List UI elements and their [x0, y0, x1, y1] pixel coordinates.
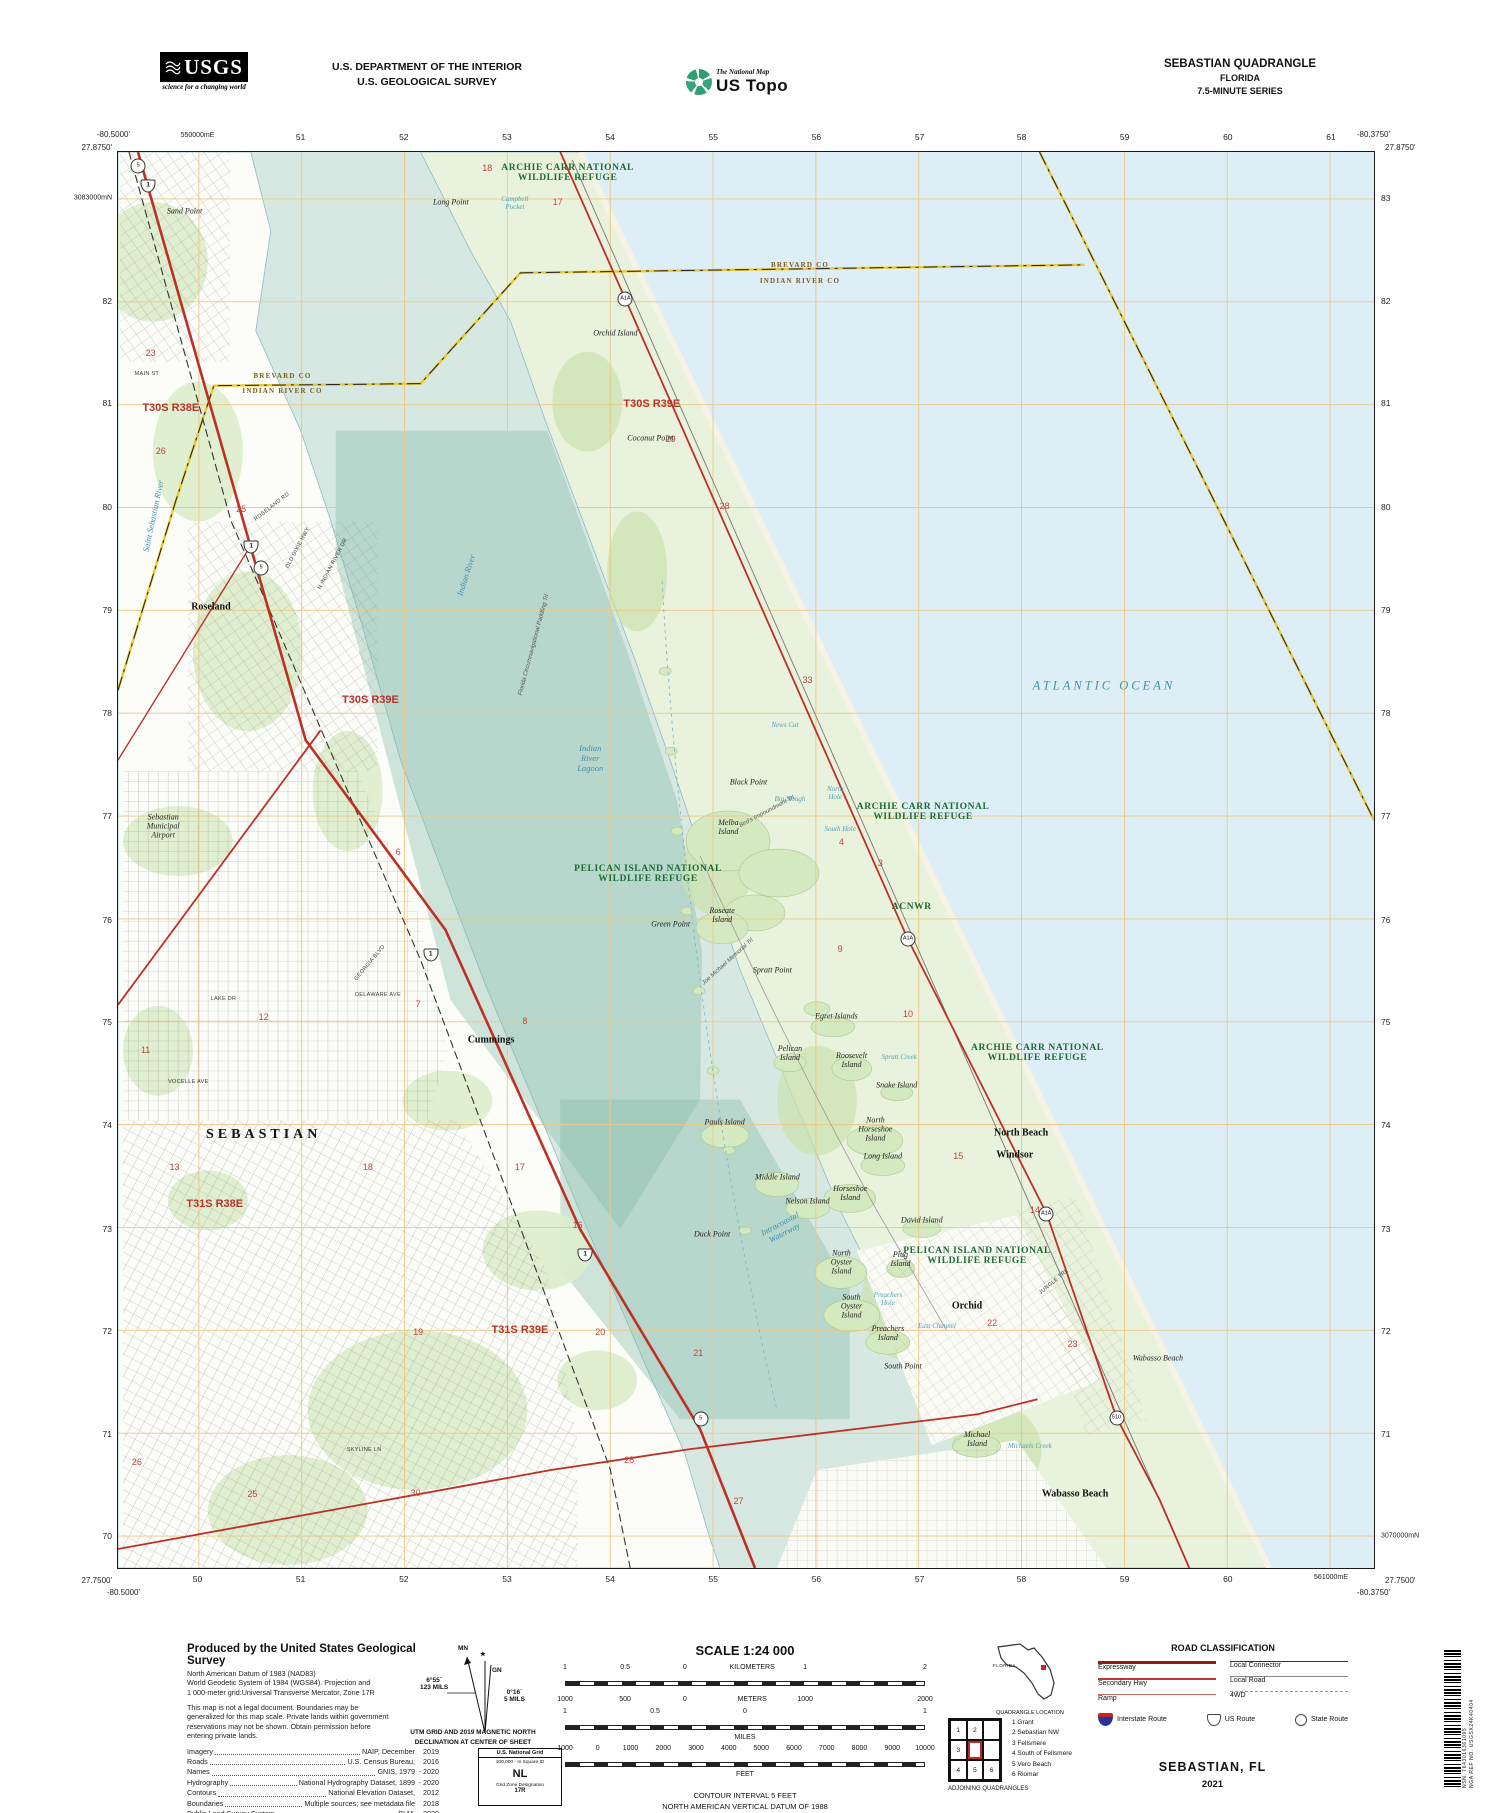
credit-leader	[230, 1785, 297, 1786]
map-label: 23	[1068, 1339, 1078, 1349]
map-label: Wabasso Beach	[1042, 1489, 1108, 1500]
barcode-nga-ref: NGA REF NO. USGSX24K40404	[1469, 1650, 1475, 1788]
scale-mark: 0.5	[650, 1708, 660, 1715]
scale-bar-miles	[565, 1725, 925, 1730]
map-label: Orchid Island	[593, 329, 637, 338]
grid-number: 76	[1381, 915, 1390, 925]
grid-number: 77	[1381, 811, 1390, 821]
grid-number: 72	[103, 1326, 112, 1336]
map-label: SKYLINE LN	[347, 1447, 382, 1453]
map-label: OLD DIXIE HWY	[284, 527, 311, 570]
dept-line2: U.S. GEOLOGICAL SURVEY	[262, 75, 592, 90]
map-label: Bird's Impoundment Trl	[739, 795, 796, 829]
map-label: JUNGLE TRL	[1038, 1268, 1070, 1296]
grid-number: 52	[399, 132, 408, 142]
scale-mi-marks: 10.501	[565, 1708, 925, 1716]
map-label: Campbell Pocket	[501, 195, 528, 211]
map-label: DELAWARE AVE	[355, 992, 401, 998]
map-label: Joe Michael Memorial Trl	[702, 937, 755, 986]
national-map-logo: The National Map US Topo	[686, 68, 788, 96]
adjoining-cell: 6	[983, 1760, 1000, 1780]
credit-year: 2020	[415, 1809, 439, 1813]
map-label: T30S R39E	[342, 694, 399, 706]
interstate-route-label: Interstate Route	[1117, 1716, 1167, 1723]
map-label: Roseate Island	[709, 906, 734, 924]
adjoining-cell: 4	[950, 1760, 967, 1780]
credit-label: Imagery	[187, 1747, 213, 1757]
scale-mark: 8000	[852, 1745, 868, 1752]
grid-number: 81	[103, 398, 112, 408]
coord-bottom-left-lon: -80.5000'	[80, 1588, 140, 1597]
map-label: PELICAN ISLAND NATIONAL WILDLIFE REFUGE	[574, 864, 722, 884]
grid-number: 56	[812, 1574, 821, 1584]
credit-row: Boundaries Multiple sources; see metadat…	[187, 1799, 439, 1809]
map-label: 20	[595, 1327, 605, 1337]
map-label: Long Point	[433, 197, 469, 206]
map-label: ARCHIE CARR NATIONAL WILDLIFE REFUGE	[857, 802, 990, 822]
map-label: 1	[423, 948, 438, 961]
grid-number: 61	[1326, 132, 1335, 142]
grid-number: 71	[103, 1429, 112, 1439]
usgs-topo-sheet: USGS science for a changing world U.S. D…	[0, 0, 1500, 1813]
quadrangle-title-block: SEBASTIAN QUADRANGLE FLORIDA 7.5-MINUTE …	[1115, 58, 1365, 96]
map-label: 23	[146, 348, 156, 358]
map-label: South Point	[884, 1361, 922, 1370]
credit-year: - 2020	[415, 1767, 439, 1777]
scale-feet-unit: FEET	[555, 1771, 935, 1778]
grid-number: 58	[1017, 132, 1026, 142]
credit-source: NAIP, December	[362, 1747, 415, 1757]
sheet-year: 2021	[1120, 1779, 1305, 1790]
adjoining-quadrangles: 123456 1 Grant2 Sebastian NW3 Fellsmere4…	[948, 1718, 1118, 1792]
sheet-name: SEBASTIAN, FL	[1120, 1760, 1305, 1774]
tnm-small-text: The National Map	[716, 68, 788, 76]
scale-mark: 1	[563, 1708, 567, 1715]
adjoining-cell	[967, 1740, 984, 1760]
adjoining-quad-name: 2 Sebastian NW	[1012, 1728, 1072, 1738]
scale-mark: 1	[563, 1664, 567, 1671]
grid-number: 58	[1017, 1574, 1026, 1584]
scale-mark: 0.5	[620, 1664, 630, 1671]
map-label: 19	[413, 1327, 423, 1337]
map-label: 13	[170, 1162, 180, 1172]
credit-label: Boundaries	[187, 1799, 223, 1809]
credit-leader	[215, 1754, 360, 1755]
map-label: ACNWR	[892, 902, 932, 912]
adjoining-cell	[983, 1740, 1000, 1760]
map-label: 28	[720, 501, 730, 511]
coord-bottom-left-lat: 27.7500'	[58, 1576, 112, 1585]
scale-mark: 500	[619, 1696, 631, 1703]
map-label: T30S R39E	[623, 398, 680, 410]
credit-row: Contours National Elevation Dataset, 201…	[187, 1788, 439, 1798]
grid-number: 77	[103, 811, 112, 821]
map-label: N INDIAN RIVER DR	[317, 537, 349, 590]
map-label: Snake Island	[876, 1081, 917, 1090]
road-class-label: Local Connector	[1230, 1662, 1281, 1669]
scale-m-marks: 10005000METERS10002000	[565, 1696, 925, 1704]
grid-number: 79	[103, 605, 112, 615]
credit-source: National Elevation Dataset,	[328, 1788, 415, 1798]
map-label: 25	[247, 1489, 257, 1499]
credit-label: Names	[187, 1767, 210, 1777]
grid-number: 55	[709, 1574, 718, 1584]
map-label: ARCHIE CARR NATIONAL WILDLIFE REFUGE	[501, 163, 634, 183]
map-label: Middle Island	[755, 1173, 800, 1182]
scale-mark: 0	[683, 1696, 687, 1703]
map-label: Nelson Island	[785, 1197, 829, 1206]
scale-mark: 0	[683, 1664, 687, 1671]
quad-name: SEBASTIAN QUADRANGLE	[1115, 58, 1365, 70]
grid-number: 53	[502, 132, 511, 142]
map-label: 25	[236, 504, 246, 514]
grid-number: 550000mE	[181, 132, 215, 139]
usng-subtitle: 100,000 - m Square ID	[479, 1760, 561, 1765]
scale-mark: 2000	[917, 1696, 933, 1703]
contour-interval-text: CONTOUR INTERVAL 5 FEET NORTH AMERICAN V…	[555, 1790, 935, 1813]
map-label: A1A	[618, 292, 633, 307]
produced-by-title: Produced by the United States Geological…	[187, 1643, 439, 1667]
grid-number: 3083000mN	[74, 194, 112, 201]
map-label: North Hole	[827, 785, 843, 801]
usgs-logo-text: USGS	[184, 55, 243, 80]
map-label: 22	[987, 1318, 997, 1328]
adjoining-cell	[983, 1720, 1000, 1740]
map-area: ARCHIE CARR NATIONAL WILDLIFE REFUGELong…	[117, 151, 1375, 1569]
usng-title: U.S. National Grid	[479, 1749, 561, 1758]
grid-number: 53	[502, 1574, 511, 1584]
map-label: Cummings	[468, 1034, 515, 1045]
road-class-row: Local Connector	[1230, 1661, 1348, 1669]
map-label: Intracoastal Waterway	[759, 1210, 805, 1247]
map-label: 5	[693, 1412, 708, 1427]
map-label: 18	[363, 1162, 373, 1172]
map-label: T31S R39E	[491, 1324, 548, 1336]
national-map-icon	[686, 69, 712, 95]
map-label: 8	[522, 1016, 527, 1026]
map-label: ARCHIE CARR NATIONAL WILDLIFE REFUGE	[971, 1043, 1104, 1063]
credit-source: BLM,	[398, 1809, 415, 1813]
florida-label: FLORIDA	[993, 1663, 1016, 1668]
grid-number: 60	[1223, 132, 1232, 142]
map-label: Sebastian Municipal Airport	[147, 813, 180, 840]
map-label: 11	[141, 1045, 150, 1055]
map-label: News Cut	[771, 721, 798, 729]
map-label: North Beach	[994, 1128, 1048, 1139]
map-label: Horseshoe Island	[833, 1184, 867, 1202]
map-label: GEORGIA BLVD	[354, 944, 387, 982]
credit-leader	[210, 1764, 346, 1765]
grid-number: 51	[296, 132, 305, 142]
credit-source: National Hydrography Dataset, 1899	[299, 1778, 415, 1788]
scale-mark: 4000	[721, 1745, 737, 1752]
map-label: 6	[396, 847, 401, 857]
adjoining-quad-name: 5 Vero Beach	[1012, 1760, 1072, 1770]
map-label: North Oyster Island	[831, 1249, 852, 1276]
map-label: South Oyster Island	[841, 1293, 862, 1320]
map-label: LAKE DR	[211, 996, 237, 1002]
grid-number: 51	[296, 1574, 305, 1584]
map-label: David Island	[901, 1215, 943, 1224]
florida-outline	[994, 1641, 1066, 1703]
scale-mark: 1	[803, 1664, 807, 1671]
map-label: SEBASTIAN	[206, 1127, 321, 1143]
map-label: 510	[1109, 1410, 1124, 1425]
grid-numbers-right: 838281807978777675747372713070000mN	[1381, 151, 1421, 1569]
road-class-row: Expressway	[1098, 1661, 1216, 1671]
map-label: 1	[244, 541, 259, 554]
usgs-wave-icon	[165, 59, 181, 75]
grid-number: 56	[812, 132, 821, 142]
adjoining-grid: 123456	[948, 1718, 1002, 1782]
ustopo-text: US Topo	[716, 76, 788, 96]
declination-gn-label: GN	[492, 1667, 502, 1674]
department-header: U.S. DEPARTMENT OF THE INTERIOR U.S. GEO…	[262, 60, 592, 90]
data-credits-list: Imagery NAIP, December 2019 Roads U.S. C…	[187, 1747, 439, 1813]
road-class-left-column: ExpresswaySecondary HwyRamp	[1098, 1661, 1216, 1709]
credit-leader	[218, 1796, 326, 1797]
state-locator: FLORIDA QUADRANGLE LOCATION	[975, 1641, 1085, 1716]
scale-mark: 2	[923, 1664, 927, 1671]
quad-state: FLORIDA	[1115, 73, 1365, 83]
map-label: Egret Islands	[815, 1011, 858, 1020]
road-class-label: Local Road	[1230, 1677, 1265, 1684]
map-label: Black Point	[730, 778, 768, 787]
map-label: Roosevelt Island	[836, 1051, 867, 1069]
grid-number: 57	[915, 132, 924, 142]
grid-number: 72	[1381, 1326, 1390, 1336]
adjoining-list: 1 Grant2 Sebastian NW3 Fellsmere4 South …	[1012, 1718, 1072, 1782]
grid-number: 59	[1120, 1574, 1129, 1584]
scale-mark: 5000	[753, 1745, 769, 1752]
barcode-nsn: NSN. 7643016361095	[1462, 1650, 1468, 1788]
barcode-icon	[1444, 1650, 1461, 1788]
usng-square-id: NL	[479, 1768, 561, 1780]
map-label: 9	[838, 944, 843, 954]
quadrangle-location-caption: QUADRANGLE LOCATION	[975, 1710, 1085, 1716]
map-label: 17	[553, 197, 563, 207]
usng-gzd-value: 17R	[479, 1788, 561, 1794]
adjoining-caption: ADJOINING QUADRANGLES	[948, 1786, 1118, 1792]
scale-mark: 6000	[786, 1745, 802, 1752]
quad-series: 7.5-MINUTE SERIES	[1115, 86, 1365, 96]
grid-number: 80	[103, 502, 112, 512]
barcode-block: NSN. 7643016361095 NGA REF NO. USGSX24K4…	[1444, 1650, 1478, 1788]
declination-star: ★	[480, 1650, 486, 1658]
us-route-shield-icon	[1207, 1714, 1221, 1726]
credit-row: Roads U.S. Census Bureau, 2016	[187, 1757, 439, 1767]
map-label: 3	[878, 858, 883, 868]
map-label: Preachers Hole	[874, 1291, 903, 1307]
grid-number: 60	[1223, 1574, 1232, 1584]
grid-number: 82	[1381, 296, 1390, 306]
quad-location-marker	[1041, 1665, 1046, 1670]
sheet-title-block: SEBASTIAN, FL 2021	[1120, 1760, 1305, 1790]
usgs-logo: USGS science for a changing world	[160, 52, 270, 91]
grid-number: 73	[1381, 1224, 1390, 1234]
map-label: Sand Point	[167, 207, 202, 216]
credit-label: Roads	[187, 1757, 208, 1767]
map-label: Florida Circumnavigational Paddling Trl	[517, 594, 550, 696]
scale-mark: 3000	[688, 1745, 704, 1752]
credit-source: GNIS, 1979	[377, 1767, 415, 1777]
grid-number: 80	[1381, 502, 1390, 512]
grid-number: 561000mE	[1314, 1574, 1348, 1581]
map-labels: ARCHIE CARR NATIONAL WILDLIFE REFUGELong…	[118, 152, 1374, 1568]
road-classification-legend: ROAD CLASSIFICATION ExpresswaySecondary …	[1098, 1643, 1348, 1726]
grid-number: 75	[103, 1017, 112, 1027]
scale-mark: 0	[743, 1708, 747, 1715]
grid-number: 74	[1381, 1120, 1390, 1130]
map-label: 26	[156, 446, 166, 456]
map-label: Windsor	[996, 1149, 1033, 1160]
road-class-title: ROAD CLASSIFICATION	[1098, 1643, 1348, 1653]
credit-row: Public Land Survey System BLM, 2020	[187, 1809, 439, 1813]
adjoining-cell: 5	[967, 1760, 984, 1780]
grid-number: 71	[1381, 1429, 1390, 1439]
coord-bottom-right-lat: 27.7500'	[1385, 1576, 1415, 1585]
grid-number: 82	[103, 296, 112, 306]
adjoining-cell: 1	[950, 1720, 967, 1740]
road-class-row: Secondary Hwy	[1098, 1678, 1216, 1687]
map-label: Indian River Lagoon	[577, 743, 603, 773]
dept-line1: U.S. DEPARTMENT OF THE INTERIOR	[262, 60, 592, 75]
map-label: MAIN ST	[135, 371, 159, 377]
grid-numbers-bottom: 5051525354555657585960561000mE	[117, 1574, 1375, 1588]
credit-year: 2012	[415, 1788, 439, 1798]
scale-title: SCALE 1:24 000	[555, 1643, 935, 1658]
map-label: 21	[693, 1348, 703, 1358]
map-label: Duck Point	[694, 1229, 730, 1238]
scale-mark: METERS	[738, 1696, 767, 1703]
declination-right-value: 0°16´ 5 MILS	[504, 1689, 525, 1703]
usng-box: U.S. National Grid 100,000 - m Square ID…	[478, 1748, 562, 1806]
road-class-row: Local Road	[1230, 1676, 1348, 1684]
usgs-logo-box: USGS	[160, 52, 248, 82]
grid-number: 59	[1120, 132, 1129, 142]
coord-bottom-right-lon: -80.3750'	[1330, 1588, 1390, 1597]
map-label: 1	[578, 1249, 593, 1262]
map-label: Orchid	[952, 1301, 982, 1312]
credit-leader	[225, 1806, 302, 1807]
map-label: North Horseshoe Island	[858, 1116, 892, 1143]
credit-source: U.S. Census Bureau,	[347, 1757, 415, 1767]
grid-number: 76	[103, 915, 112, 925]
map-label: 30	[411, 1488, 421, 1498]
map-label: Green Point	[651, 919, 690, 928]
map-label: BREVARD CO	[771, 261, 829, 269]
map-label: 1	[141, 179, 156, 192]
map-label: 5	[254, 561, 269, 576]
map-label: 5	[131, 159, 146, 174]
credit-row: Hydrography National Hydrography Dataset…	[187, 1778, 439, 1788]
grid-number: 54	[605, 1574, 614, 1584]
map-label: Pelican Island	[778, 1044, 802, 1062]
scale-mark: 9000	[884, 1745, 900, 1752]
grid-numbers-left: 3083000mN82818079787776757473727170	[76, 151, 112, 1569]
map-label: 33	[803, 675, 813, 685]
declination-left-value: 6°55´ 123 MILS	[420, 1677, 448, 1691]
map-label: 17	[515, 1162, 525, 1172]
map-label: Melba Island	[718, 818, 738, 836]
scale-mark: 1000	[557, 1745, 573, 1752]
map-label: ROSELAND RD	[254, 492, 292, 523]
credit-label: Contours	[187, 1788, 216, 1798]
map-label: 28	[624, 1455, 634, 1465]
map-label: Spratt Creek	[882, 1053, 917, 1061]
map-label: South Hole	[825, 825, 856, 833]
grid-number: 54	[605, 132, 614, 142]
credit-leader	[212, 1775, 376, 1776]
map-label: Spratt Point	[753, 966, 792, 975]
grid-numbers-top: 550000mE5152535455565758596061	[117, 132, 1375, 146]
grid-number: 78	[103, 708, 112, 718]
map-label: Michael Island	[964, 1430, 990, 1448]
scale-mark: 1000	[797, 1696, 813, 1703]
grid-number: 79	[1381, 605, 1390, 615]
map-label: 26	[132, 1457, 142, 1467]
credit-source: Multiple sources; see metadata file	[304, 1799, 415, 1809]
us-route-label: US Route	[1225, 1716, 1255, 1723]
map-label: 4	[839, 837, 844, 847]
credit-year: - 2020	[415, 1778, 439, 1788]
map-label: Wabasso Beach	[1133, 1354, 1183, 1363]
scale-ft-marks: 1000010002000300040005000600070008000900…	[565, 1745, 925, 1753]
grid-number: 78	[1381, 708, 1390, 718]
grid-number: 52	[399, 1574, 408, 1584]
grid-number: 70	[103, 1531, 112, 1541]
road-class-right-column: Local ConnectorLocal Road4WD	[1230, 1661, 1348, 1709]
scale-mark: 1000	[557, 1696, 573, 1703]
usgs-tagline: science for a changing world	[160, 83, 248, 91]
road-class-row: 4WD	[1230, 1691, 1348, 1699]
map-label: INDIAN RIVER CO	[760, 277, 840, 285]
declination-caption: UTM GRID AND 2019 MAGNETIC NORTH DECLINA…	[383, 1728, 563, 1748]
map-label: Michaels Creek	[1008, 1442, 1052, 1450]
scale-block: SCALE 1:24 000 10.50KILOMETERS12 1000500…	[555, 1643, 935, 1813]
credit-label: Hydrography	[187, 1778, 228, 1788]
credit-row: Names GNIS, 1979 - 2020	[187, 1767, 439, 1777]
credit-year: 2018	[415, 1799, 439, 1809]
grid-number: 81	[1381, 398, 1390, 408]
road-class-label: Expressway	[1098, 1664, 1136, 1671]
scale-mark: 1000	[623, 1745, 639, 1752]
map-label: ATLANTIC OCEAN	[1033, 678, 1176, 693]
map-label: 7	[416, 999, 421, 1009]
map-label: 12	[259, 1012, 269, 1022]
map-label: INDIAN RIVER CO	[242, 387, 322, 395]
grid-number: 73	[103, 1224, 112, 1234]
scale-mark: KILOMETERS	[730, 1664, 775, 1671]
map-label: T30S R38E	[142, 402, 199, 414]
map-label: East Channel	[918, 1322, 956, 1330]
declination-mn-label: MN	[458, 1645, 468, 1652]
scale-mark: 7000	[819, 1745, 835, 1752]
map-label: Saint Sebastian River	[141, 479, 166, 553]
grid-number: 75	[1381, 1017, 1390, 1027]
map-label: A1A	[901, 932, 916, 947]
map-label: 16	[573, 1220, 583, 1230]
map-label: Pauls Island	[705, 1117, 745, 1126]
map-label: 15	[953, 1151, 963, 1161]
map-label: BREVARD CO	[254, 372, 312, 380]
map-label: VOCELLE AVE	[168, 1079, 209, 1085]
scale-bar-feet	[565, 1762, 925, 1767]
adjoining-quad-name: 4 South of Fellsmere	[1012, 1749, 1072, 1759]
map-label: 27	[733, 1496, 743, 1506]
adjoining-cell: 2	[967, 1720, 984, 1740]
map-label: 18	[482, 163, 492, 173]
